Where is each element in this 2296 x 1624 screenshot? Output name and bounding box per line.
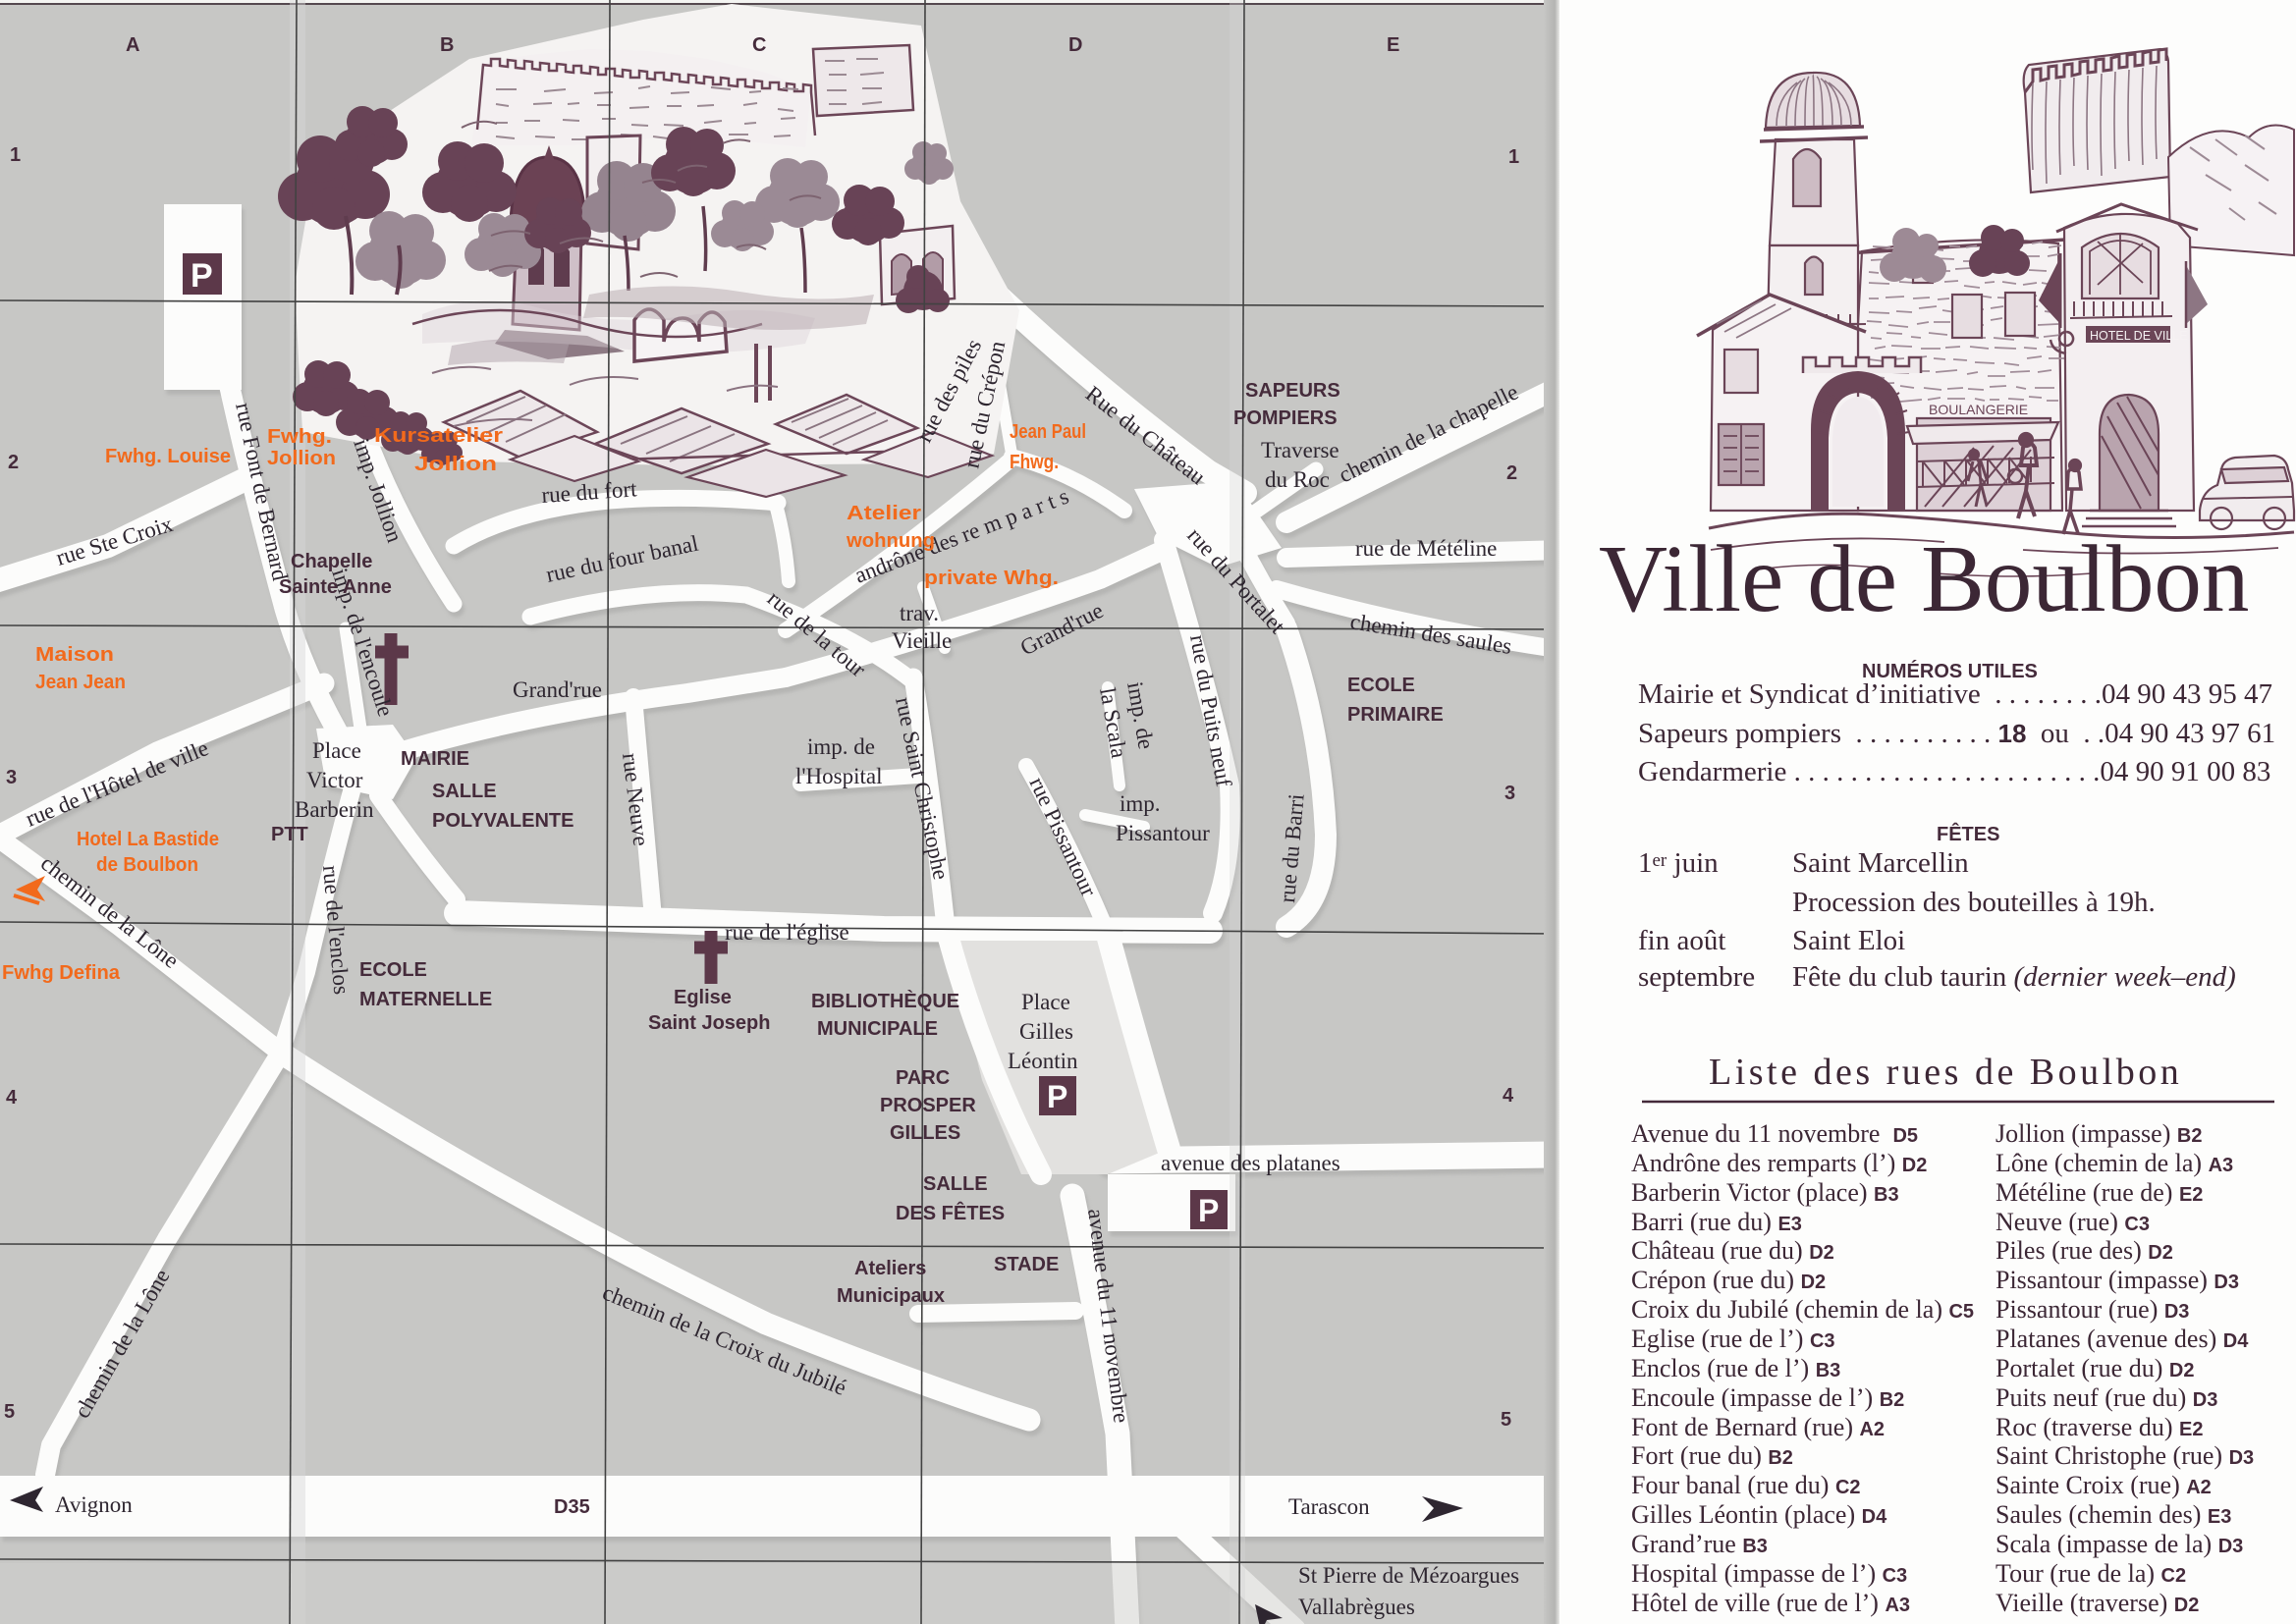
- svg-text:4: 4: [1503, 1085, 1514, 1107]
- svg-text:Grand'rue: Grand'rue: [513, 677, 602, 702]
- svg-text:Fwhg Defina: Fwhg Defina: [2, 962, 121, 984]
- svg-text:Jean Jean: Jean Jean: [35, 672, 126, 693]
- svg-text:2: 2: [1506, 462, 1517, 484]
- svg-text:imp. de: imp. de: [807, 734, 875, 759]
- svg-text:PARC: PARC: [896, 1067, 950, 1089]
- svg-text:PTT: PTT: [271, 824, 308, 845]
- svg-text:Ville de Boulbon: Ville de Boulbon: [1599, 526, 2249, 631]
- svg-text:1er juin: 1er juin: [1638, 847, 1719, 879]
- svg-text:SALLE: SALLE: [923, 1173, 988, 1195]
- svg-text:Hospital (impasse de l’) C3: Hospital (impasse de l’) C3: [1631, 1559, 1907, 1588]
- svg-text:Andrône des remparts (l’) D2: Andrône des remparts (l’) D2: [1631, 1149, 1927, 1177]
- svg-text:B: B: [440, 34, 454, 56]
- svg-text:Vieille (traverse) D2: Vieille (traverse) D2: [1995, 1589, 2199, 1617]
- svg-text:STADE: STADE: [994, 1254, 1059, 1275]
- svg-text:Jollion: Jollion: [414, 454, 497, 475]
- svg-text:Pissantour: Pissantour: [1116, 821, 1210, 845]
- svg-text:Léontin: Léontin: [1008, 1049, 1078, 1073]
- svg-text:FÊTES: FÊTES: [1937, 822, 1999, 845]
- svg-text:Tour (rue de la) C2: Tour (rue de la) C2: [1995, 1559, 2186, 1588]
- svg-text:Roc (traverse du) E2: Roc (traverse du) E2: [1995, 1413, 2203, 1441]
- svg-text:DES FÊTES: DES FÊTES: [896, 1201, 1005, 1224]
- svg-text:Four banal (rue du) C2: Four banal (rue du) C2: [1631, 1471, 1861, 1499]
- svg-text:Atelier: Atelier: [847, 503, 921, 524]
- svg-text:avenue des platanes: avenue des platanes: [1161, 1151, 1340, 1175]
- svg-text:imp.: imp.: [1120, 791, 1161, 816]
- svg-text:Jollion (impasse) B2: Jollion (impasse) B2: [1995, 1119, 2202, 1148]
- svg-text:2: 2: [8, 452, 19, 473]
- svg-text:Portalet (rue du) D2: Portalet (rue du) D2: [1995, 1354, 2194, 1382]
- svg-text:Lône (chemin de la) A3: Lône (chemin de la) A3: [1995, 1149, 2233, 1177]
- svg-text:Barri (rue du) E3: Barri (rue du) E3: [1631, 1208, 1802, 1236]
- svg-text:Enclos (rue de l’) B3: Enclos (rue de l’) B3: [1631, 1354, 1840, 1382]
- svg-text:HOTEL DE VILLE: HOTEL DE VILLE: [2090, 329, 2188, 343]
- svg-text:Ateliers: Ateliers: [854, 1258, 926, 1279]
- svg-text:Jollion: Jollion: [267, 448, 336, 469]
- svg-text:Victor: Victor: [306, 768, 363, 792]
- svg-text:Saules (chemin des) E3: Saules (chemin des) E3: [1995, 1500, 2231, 1529]
- svg-text:C: C: [752, 34, 766, 56]
- svg-text:BIBLIOTHÈQUE: BIBLIOTHÈQUE: [811, 990, 959, 1012]
- svg-text:Croix du Jubilé (chemin de la): Croix du Jubilé (chemin de la) C5: [1631, 1295, 1974, 1324]
- svg-text:P: P: [1047, 1079, 1067, 1114]
- svg-text:P: P: [1198, 1193, 1219, 1228]
- svg-text:Saint Eloi: Saint Eloi: [1792, 925, 1905, 956]
- svg-text:A: A: [126, 34, 139, 56]
- svg-text:Eglise: Eglise: [674, 987, 732, 1008]
- svg-text:Chapelle: Chapelle: [291, 551, 372, 572]
- svg-text:rue de Météline: rue de Météline: [1355, 536, 1497, 561]
- svg-text:Encoule (impasse de l’) B2: Encoule (impasse de l’) B2: [1631, 1383, 1904, 1412]
- svg-text:SAPEURS: SAPEURS: [1245, 380, 1340, 402]
- svg-text:Château (rue du) D2: Château (rue du) D2: [1631, 1236, 1834, 1265]
- svg-text:Font de Bernard (rue) A2: Font de Bernard (rue) A2: [1631, 1413, 1885, 1441]
- svg-text:5: 5: [1501, 1409, 1511, 1431]
- svg-text:5: 5: [4, 1401, 15, 1423]
- svg-text:Hôtel de ville (rue de l’) A3: Hôtel de ville (rue de l’) A3: [1631, 1589, 1910, 1617]
- svg-text:1: 1: [1508, 146, 1519, 168]
- svg-text:Sainte Croix (rue) A2: Sainte Croix (rue) A2: [1995, 1471, 2212, 1499]
- svg-text:Tarascon: Tarascon: [1288, 1494, 1370, 1519]
- svg-text:Scala (impasse de la) D3: Scala (impasse de la) D3: [1995, 1530, 2243, 1558]
- svg-text:Municipaux: Municipaux: [837, 1285, 945, 1307]
- svg-text:Vieille: Vieille: [892, 628, 952, 653]
- svg-text:MUNICIPALE: MUNICIPALE: [817, 1018, 938, 1040]
- svg-text:Saint Christophe (rue) D3: Saint Christophe (rue) D3: [1995, 1441, 2254, 1470]
- svg-text:ECOLE: ECOLE: [1347, 675, 1415, 696]
- svg-text:Sapeurs pompiers . . . . . .: Sapeurs pompiers . . . . . . . . . . 18 …: [1638, 718, 2275, 749]
- svg-text:Avenue du 11 novembre D5: Avenue du 11 novembre D5: [1631, 1119, 1918, 1148]
- svg-text:Météline (rue de) E2: Météline (rue de) E2: [1995, 1178, 2203, 1207]
- svg-text:Fhwg.: Fhwg.: [1010, 452, 1059, 473]
- svg-text:de Boulbon: de Boulbon: [96, 854, 198, 876]
- svg-text:rue de l'église: rue de l'église: [725, 920, 849, 945]
- svg-text:St Pierre de Mézoargues: St Pierre de Mézoargues: [1298, 1563, 1519, 1588]
- svg-text:wohnung: wohnung: [846, 530, 935, 552]
- svg-text:BOULANGERIE: BOULANGERIE: [1929, 402, 2028, 417]
- svg-text:Place: Place: [312, 738, 361, 763]
- svg-text:D35: D35: [554, 1496, 590, 1518]
- svg-text:Saint Marcellin: Saint Marcellin: [1792, 847, 1969, 879]
- svg-text:D: D: [1068, 34, 1082, 56]
- svg-text:trav.: trav.: [900, 601, 939, 625]
- svg-text:Saint Joseph: Saint Joseph: [648, 1012, 770, 1034]
- svg-text:Sainte Anne: Sainte Anne: [279, 576, 392, 598]
- svg-text:Barberin Victor (place) B3: Barberin Victor (place) B3: [1631, 1178, 1899, 1207]
- svg-text:MAIRIE: MAIRIE: [401, 748, 469, 770]
- svg-text:Maison: Maison: [35, 644, 114, 666]
- svg-text:Gendarmerie . . . . . . . . .: Gendarmerie . . . . . . . . . . . . . . …: [1638, 756, 2270, 787]
- svg-text:Fwhg. Louise: Fwhg. Louise: [105, 446, 231, 467]
- svg-text:ECOLE: ECOLE: [359, 959, 427, 981]
- svg-text:Mairie et Syndicat d’initiativ: Mairie et Syndicat d’initiative . . . . …: [1638, 678, 2272, 710]
- svg-text:MATERNELLE: MATERNELLE: [359, 989, 492, 1010]
- svg-text:Traverse: Traverse: [1261, 438, 1339, 462]
- svg-text:Place: Place: [1021, 990, 1070, 1014]
- svg-text:4: 4: [6, 1087, 18, 1109]
- svg-text:3: 3: [1504, 783, 1515, 804]
- svg-text:E: E: [1387, 34, 1399, 56]
- svg-text:3: 3: [6, 767, 17, 788]
- svg-text:1: 1: [10, 144, 21, 166]
- svg-text:P: P: [191, 257, 213, 295]
- svg-text:Procession des bouteilles à 19: Procession des bouteilles à 19h.: [1792, 887, 2156, 918]
- svg-text:Pissantour (rue) D3: Pissantour (rue) D3: [1995, 1295, 2189, 1324]
- svg-text:Fête du club taurin (dernier w: Fête du club taurin (dernier week–end): [1792, 961, 2236, 993]
- svg-text:Barberin: Barberin: [295, 797, 374, 822]
- svg-text:l'Hospital: l'Hospital: [795, 764, 882, 788]
- svg-text:Liste des rues de Boulbon: Liste des rues de Boulbon: [1709, 1052, 2182, 1093]
- svg-text:Puits neuf (rue du) D3: Puits neuf (rue du) D3: [1995, 1383, 2217, 1412]
- svg-text:PRIMAIRE: PRIMAIRE: [1347, 704, 1444, 726]
- svg-text:Jean Paul: Jean Paul: [1010, 421, 1086, 443]
- svg-text:du Roc: du Roc: [1265, 467, 1330, 492]
- svg-text:septembre: septembre: [1638, 961, 1755, 993]
- svg-text:Kursatelier: Kursatelier: [374, 425, 503, 447]
- svg-text:Gilles: Gilles: [1019, 1019, 1073, 1044]
- svg-text:POLYVALENTE: POLYVALENTE: [432, 810, 574, 832]
- svg-text:fin août: fin août: [1638, 925, 1725, 956]
- svg-text:Crépon (rue du) D2: Crépon (rue du) D2: [1631, 1266, 1826, 1294]
- svg-text:Gilles Léontin (place) D4: Gilles Léontin (place) D4: [1631, 1500, 1887, 1529]
- svg-text:Platanes (avenue des) D4: Platanes (avenue des) D4: [1995, 1325, 2249, 1353]
- svg-text:Hotel La Bastide: Hotel La Bastide: [77, 829, 219, 850]
- svg-text:Fwhg.: Fwhg.: [267, 426, 332, 448]
- svg-text:SALLE: SALLE: [432, 781, 497, 802]
- svg-text:Pissantour (impasse) D3: Pissantour (impasse) D3: [1995, 1266, 2239, 1294]
- svg-text:Eglise (rue de l’) C3: Eglise (rue de l’) C3: [1631, 1325, 1835, 1353]
- svg-text:POMPIERS: POMPIERS: [1233, 407, 1338, 429]
- svg-text:Avignon: Avignon: [55, 1492, 133, 1517]
- svg-text:GILLES: GILLES: [890, 1122, 960, 1144]
- svg-text:private Whg.: private Whg.: [924, 568, 1059, 589]
- svg-text:Vallabrègues: Vallabrègues: [1298, 1595, 1415, 1619]
- svg-text:PROSPER: PROSPER: [880, 1095, 976, 1116]
- svg-text:Piles (rue des) D2: Piles (rue des) D2: [1995, 1236, 2173, 1265]
